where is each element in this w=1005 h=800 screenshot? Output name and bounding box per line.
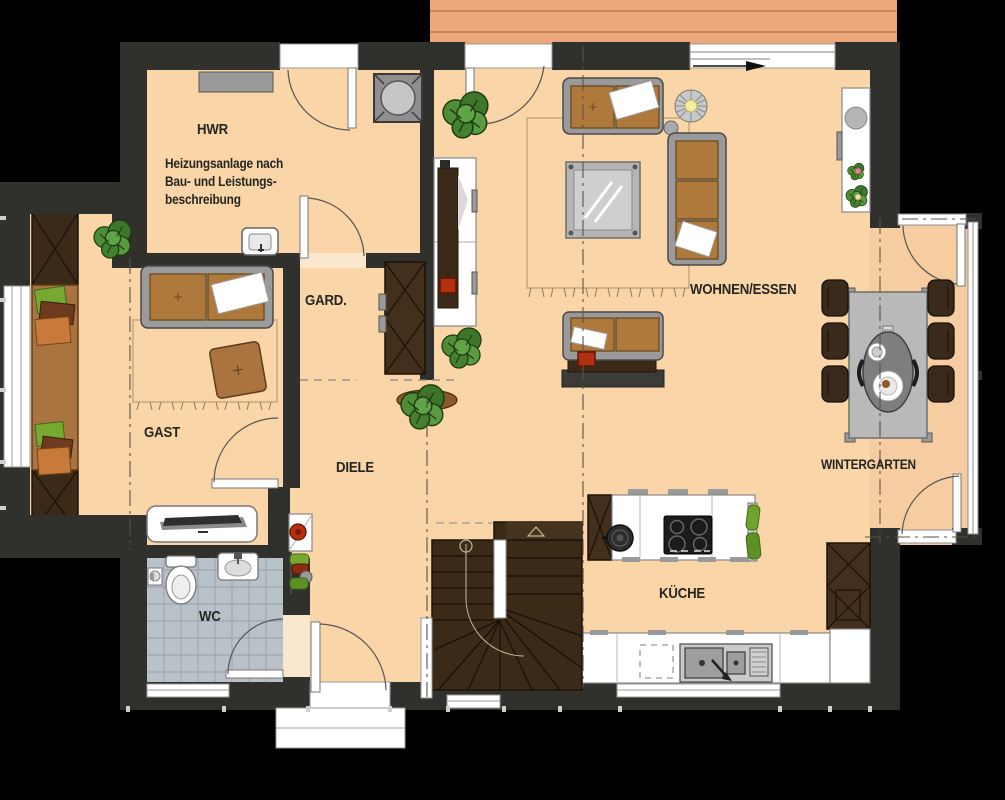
utility-sink	[242, 228, 278, 255]
kitchen-tall-cabinet-right	[827, 543, 870, 683]
floor-plan-drawing	[0, 0, 1005, 800]
gast-dresser	[147, 506, 257, 542]
floor-plan: HWR Heizungsanlage nach Bau- und Leistun…	[0, 0, 1005, 800]
hwr-shelf	[199, 72, 273, 92]
room-label-kueche: KÜCHE	[659, 585, 705, 602]
sliding-terrace-door	[690, 44, 835, 71]
staircase	[432, 522, 582, 690]
red-decor	[578, 352, 595, 366]
sofa-top	[563, 78, 663, 134]
wintergarten-glass-wall	[968, 222, 978, 534]
room-label-hwr: HWR	[197, 121, 228, 138]
tv-lowboard	[434, 158, 477, 326]
kitchen-island	[588, 489, 761, 562]
wc-window	[147, 684, 229, 697]
kitchen-sink	[680, 644, 772, 682]
kitchen-window	[617, 684, 780, 697]
gast-builtin-wardrobe	[32, 213, 78, 533]
toilet	[166, 556, 196, 604]
wc-sink	[218, 552, 258, 580]
toilet-paper-holder	[148, 568, 162, 585]
room-label-wc: WC	[199, 608, 221, 625]
porch-steps	[276, 708, 405, 748]
room-label-wohnen-essen: WOHNEN/ESSEN	[690, 281, 796, 298]
sofa-bottom-console	[562, 312, 664, 387]
heating-note-line3: beschreibung	[165, 191, 283, 209]
terrace	[430, 0, 897, 44]
cooktop	[664, 516, 712, 554]
gast-sofa	[141, 266, 273, 328]
sofa-right	[668, 133, 726, 265]
room-label-gard: GARD.	[305, 292, 347, 309]
heating-note: Heizungsanlage nach Bau- und Leistungs- …	[165, 155, 283, 209]
red-decor	[440, 278, 456, 293]
coffee-table	[566, 162, 640, 238]
gard-wardrobe	[379, 262, 425, 374]
chimney	[374, 74, 422, 122]
room-label-wintergarten: WINTERGARTEN	[821, 457, 916, 472]
gast-ottoman	[209, 341, 267, 399]
hall-console	[289, 514, 312, 551]
console-sideboard	[562, 370, 664, 387]
heating-note-line2: Bau- und Leistungs-	[165, 173, 283, 191]
room-label-gast: GAST	[144, 424, 180, 441]
heating-note-line1: Heizungsanlage nach	[165, 155, 283, 173]
cellar-window	[447, 695, 500, 708]
gast-window	[4, 286, 30, 467]
room-label-diele: DIELE	[336, 459, 374, 476]
